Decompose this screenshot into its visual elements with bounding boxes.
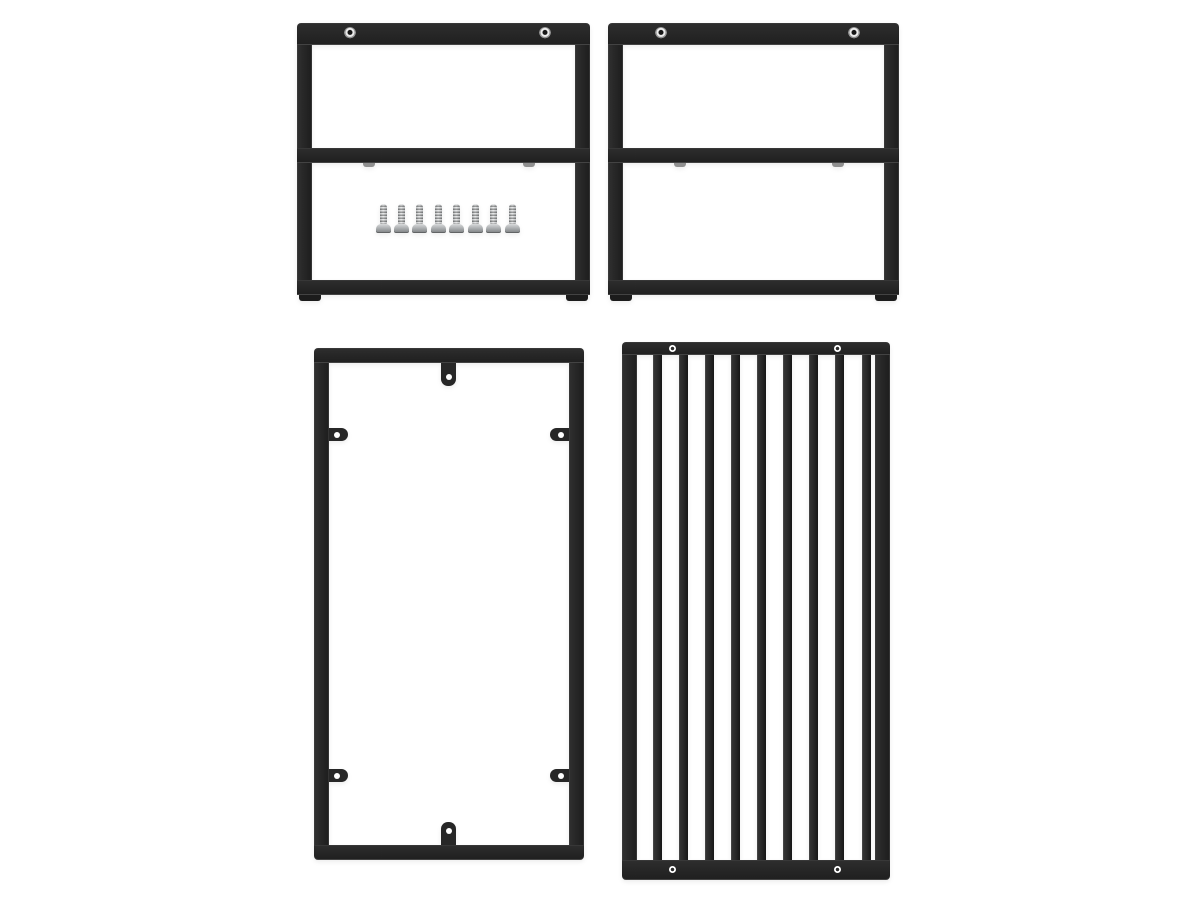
vertical-slat [731, 355, 740, 860]
left-rail [314, 363, 329, 845]
mounting-eyelet-hole [655, 27, 667, 39]
foot [610, 295, 632, 301]
upper-frame-right [608, 23, 899, 301]
tab-hole [334, 432, 340, 438]
set-screw-nub [832, 163, 844, 167]
tab-hole [446, 374, 452, 380]
bottom-rail [314, 845, 584, 860]
vertical-slat [679, 355, 688, 860]
screw-head [505, 224, 520, 233]
right-rail [875, 355, 890, 860]
tab-hole [558, 432, 564, 438]
tab-hole [446, 828, 452, 834]
screw-head [486, 224, 501, 233]
left-rail [622, 355, 637, 860]
right-rail [569, 363, 584, 845]
mounting-hole [834, 866, 841, 873]
screw-head [394, 224, 409, 233]
screw [376, 204, 391, 233]
screw-shaft [490, 204, 497, 224]
screw [505, 204, 520, 233]
screw-shaft [398, 204, 405, 224]
mounting-hole [669, 866, 676, 873]
mounting-hole [669, 345, 676, 352]
top-rail [622, 342, 890, 355]
screw-shaft [453, 204, 460, 224]
screw [394, 204, 409, 233]
screw-head [449, 224, 464, 233]
bottom-rail [608, 280, 899, 295]
set-screw-nub [674, 163, 686, 167]
screw-head [376, 224, 391, 233]
mounting-eyelet-hole [848, 27, 860, 39]
screw-shaft [509, 204, 516, 224]
screw-shaft [416, 204, 423, 224]
lower-frame-left [314, 348, 584, 860]
tab-hole [334, 773, 340, 779]
product-image-canvas [0, 0, 1200, 900]
screw-head [468, 224, 483, 233]
mounting-hole [834, 345, 841, 352]
vertical-slat [705, 355, 714, 860]
screw-head [431, 224, 446, 233]
screw-shaft [380, 204, 387, 224]
screw-shaft [472, 204, 479, 224]
vertical-slat [783, 355, 792, 860]
foot [875, 295, 897, 301]
upper-frame-left [297, 23, 590, 301]
screw [412, 204, 427, 233]
screw-head [412, 224, 427, 233]
screw [486, 204, 501, 233]
lower-frame-right [622, 342, 890, 880]
vertical-slat [653, 355, 662, 860]
vertical-slat [757, 355, 766, 860]
bottom-rail [622, 860, 890, 880]
top-rail [314, 348, 584, 363]
screw [468, 204, 483, 233]
crossbar [608, 148, 899, 163]
screws-row [297, 23, 590, 301]
screw [431, 204, 446, 233]
tab-hole [558, 773, 564, 779]
vertical-slat [862, 355, 871, 860]
screw-shaft [435, 204, 442, 224]
vertical-slat [835, 355, 844, 860]
vertical-slat [809, 355, 818, 860]
screw [449, 204, 464, 233]
